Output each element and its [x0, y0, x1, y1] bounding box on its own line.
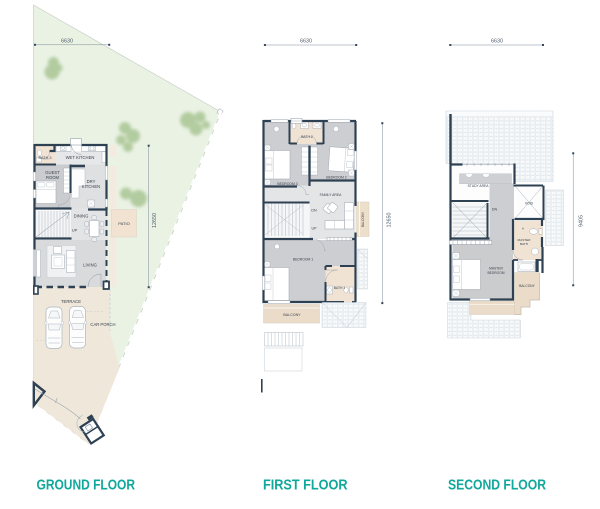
- svg-text:BATH 2: BATH 2: [301, 135, 313, 139]
- svg-text:FAMILY AREA: FAMILY AREA: [320, 193, 342, 197]
- svg-text:PATIO: PATIO: [118, 221, 129, 226]
- svg-text:SECOND FLOOR: SECOND FLOOR: [448, 477, 546, 494]
- svg-text:DN: DN: [311, 209, 317, 213]
- svg-text:CAR PORCH: CAR PORCH: [90, 322, 115, 327]
- svg-text:WET KITCHEN: WET KITCHEN: [66, 155, 95, 160]
- svg-text:LIVING: LIVING: [83, 263, 97, 268]
- svg-text:TERRACE: TERRACE: [61, 299, 81, 304]
- svg-text:VOID: VOID: [525, 202, 534, 206]
- svg-text:GROUND FLOOR: GROUND FLOOR: [37, 477, 136, 494]
- svg-text:BALCONY: BALCONY: [361, 211, 365, 227]
- svg-text:6630: 6630: [491, 38, 503, 44]
- svg-text:STUDY AREA: STUDY AREA: [468, 184, 490, 188]
- svg-text:KITCHEN: KITCHEN: [82, 184, 100, 189]
- svg-text:BEDROOM 2: BEDROOM 2: [326, 175, 346, 179]
- svg-text:FIRST FLOOR: FIRST FLOOR: [263, 477, 348, 494]
- svg-text:9405: 9405: [579, 215, 585, 227]
- svg-text:BEDROOM 3: BEDROOM 3: [277, 182, 297, 186]
- svg-text:BATH 3: BATH 3: [38, 156, 51, 160]
- svg-text:DN: DN: [492, 208, 498, 212]
- svg-text:UP: UP: [72, 228, 78, 233]
- svg-text:BEDROOM: BEDROOM: [487, 271, 504, 275]
- svg-text:12650: 12650: [152, 213, 158, 228]
- svg-text:BALCONY: BALCONY: [283, 313, 301, 317]
- svg-text:6630: 6630: [300, 38, 312, 44]
- svg-text:DINING: DINING: [74, 214, 89, 219]
- svg-text:6630: 6630: [61, 38, 73, 44]
- svg-text:12650: 12650: [387, 213, 393, 228]
- svg-text:ROOM: ROOM: [46, 175, 60, 180]
- svg-text:BATH 1: BATH 1: [334, 286, 346, 290]
- svg-text:BATH: BATH: [520, 242, 528, 246]
- svg-text:BALCONY: BALCONY: [519, 284, 536, 288]
- svg-text:BEDROOM 1: BEDROOM 1: [293, 258, 313, 262]
- svg-text:UP: UP: [312, 227, 318, 231]
